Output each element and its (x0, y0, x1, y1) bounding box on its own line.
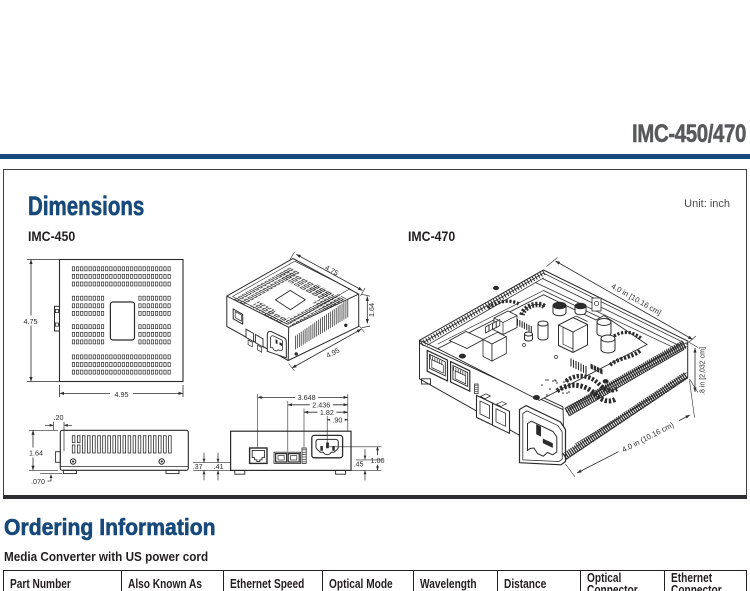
svg-text:4.75: 4.75 (323, 263, 340, 278)
svg-text:.41: .41 (214, 462, 224, 471)
svg-text:4.0 in (10.16 cm): 4.0 in (10.16 cm) (620, 420, 675, 454)
svg-text:.8 in [2,032 cm]: .8 in [2,032 cm] (700, 347, 707, 395)
svg-text:.90: .90 (332, 416, 342, 425)
svg-text:4.95: 4.95 (115, 390, 129, 399)
svg-text:4.75: 4.75 (24, 317, 38, 326)
svg-text:1.00: 1.00 (371, 456, 385, 465)
svg-text:.20: .20 (54, 413, 64, 422)
svg-text:4.95: 4.95 (325, 346, 342, 360)
svg-text:1.64: 1.64 (29, 449, 43, 458)
svg-text:.45: .45 (354, 460, 364, 469)
svg-text:.37: .37 (193, 462, 203, 471)
svg-text:1.64: 1.64 (367, 303, 376, 317)
svg-text:.070: .070 (31, 477, 45, 486)
